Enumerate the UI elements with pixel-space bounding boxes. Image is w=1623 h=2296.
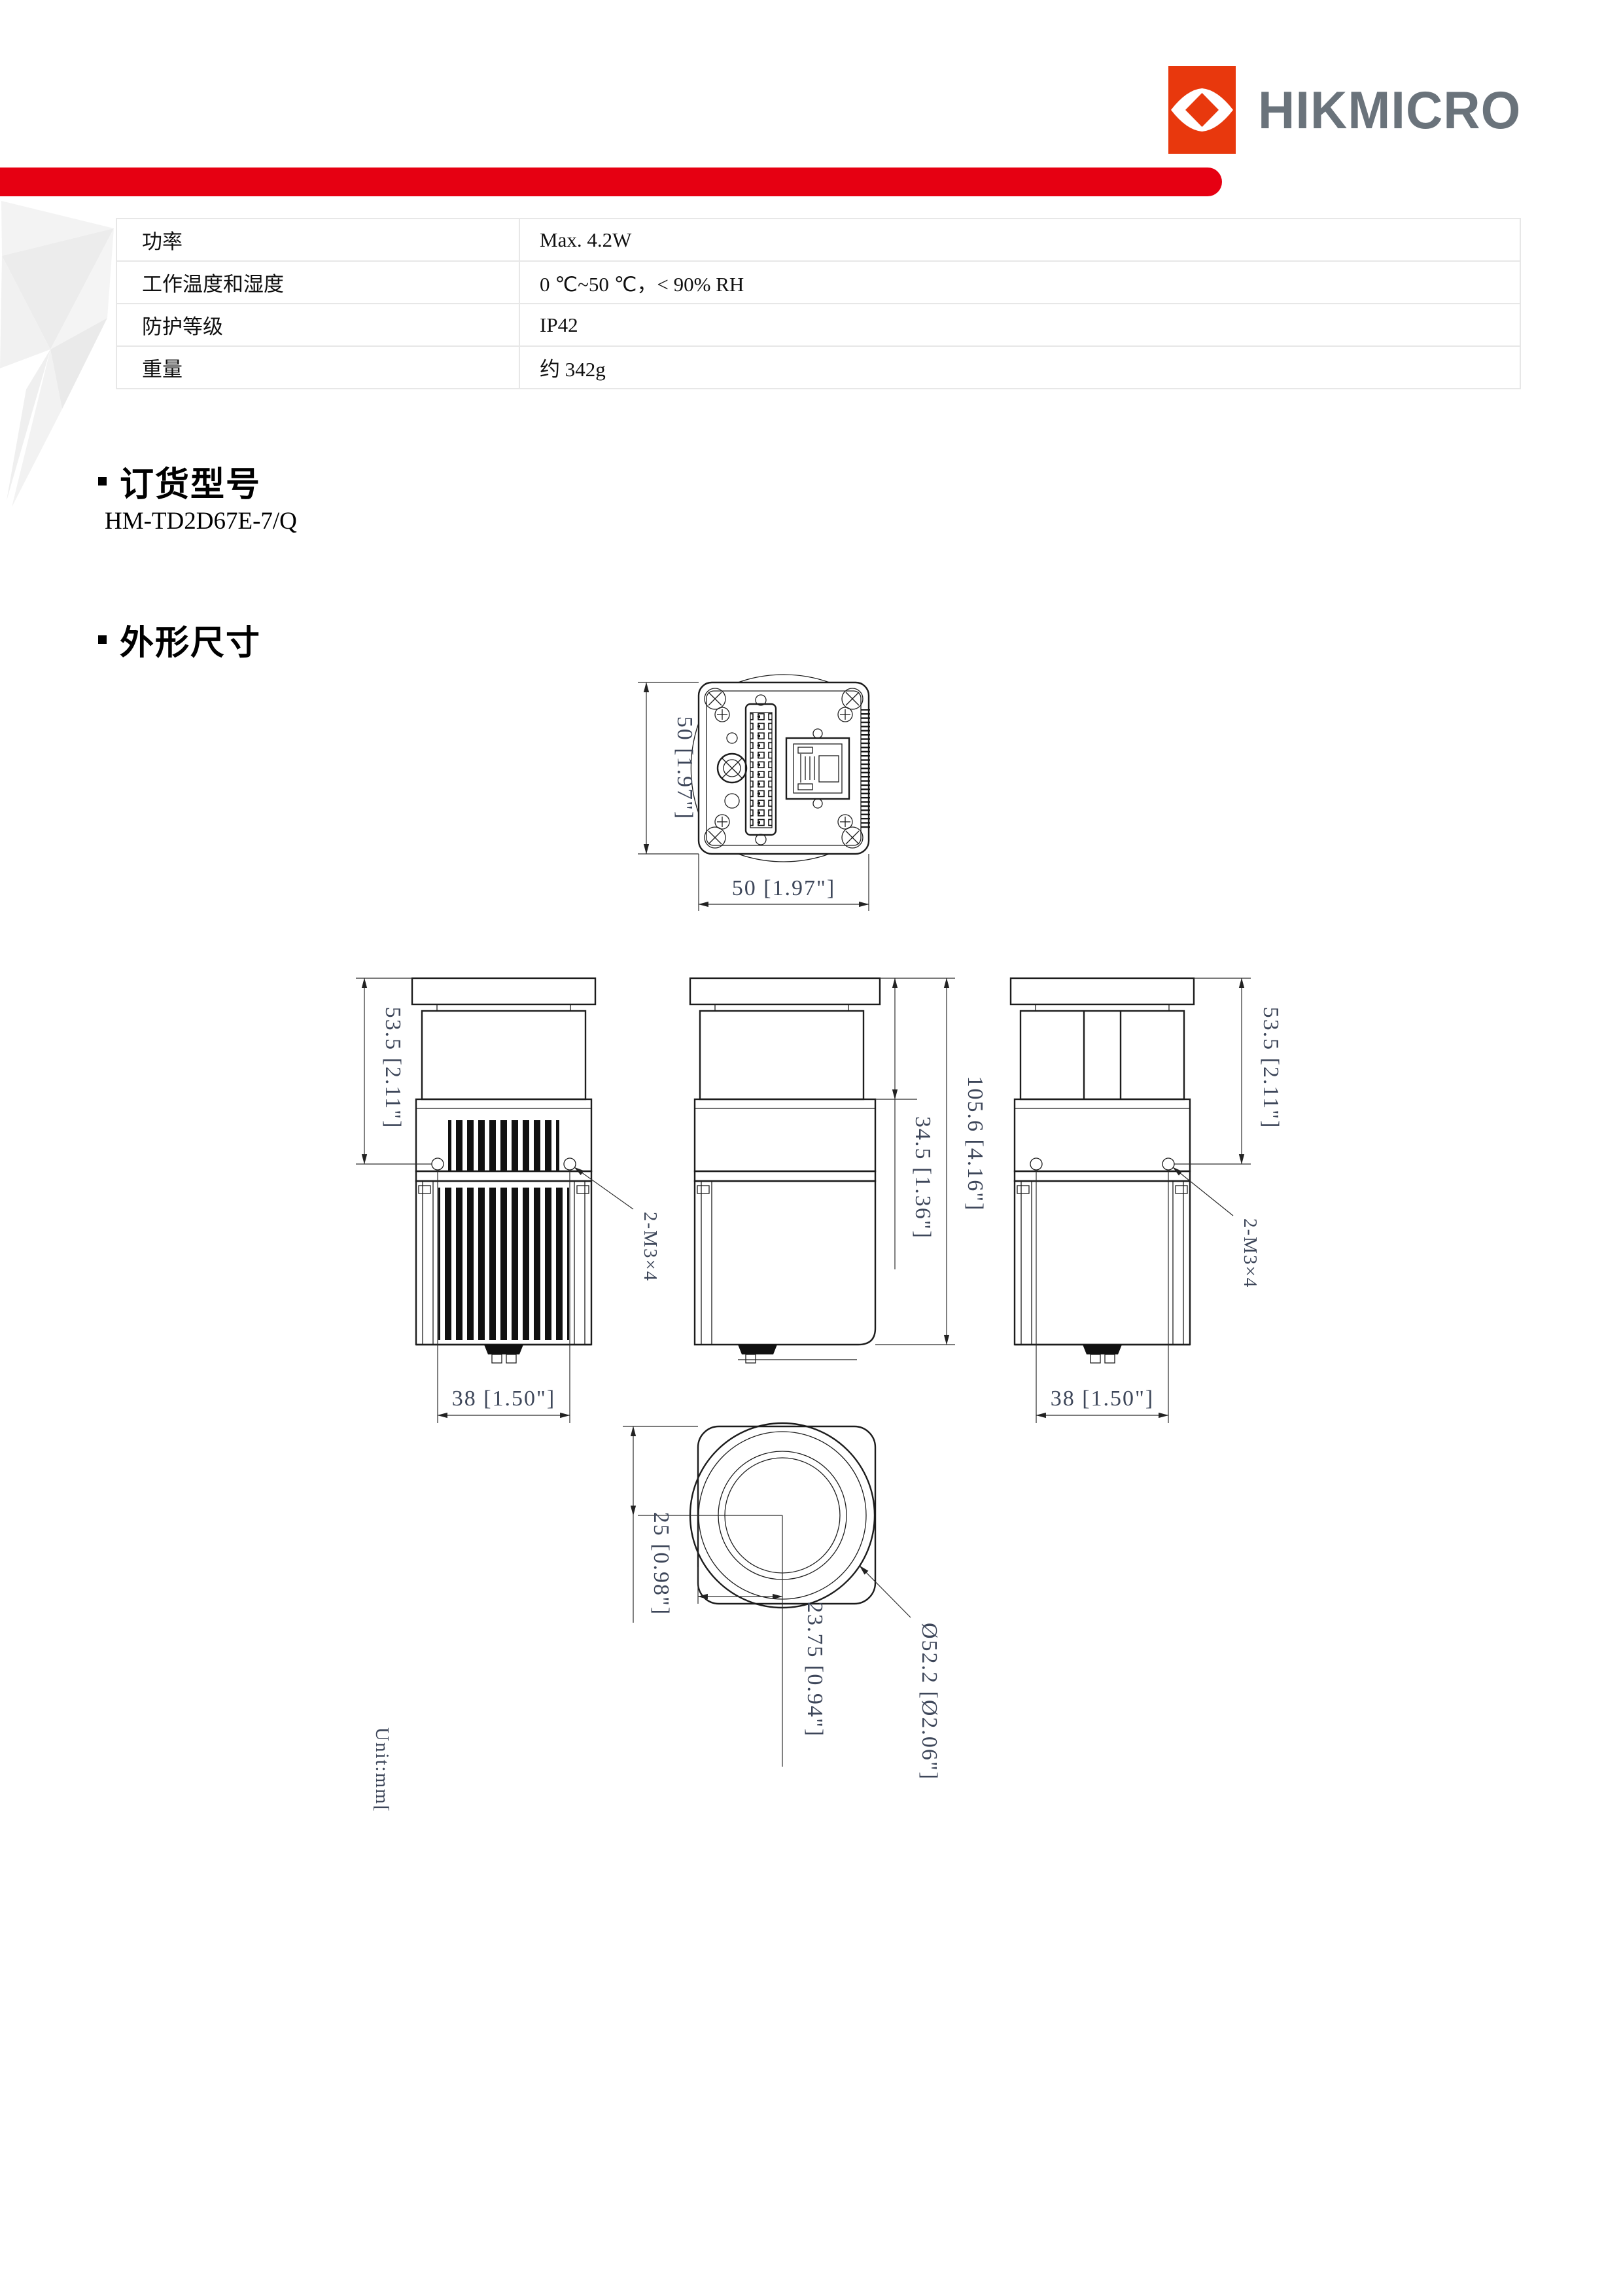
front-lens-view-drawing: 25 [0.98"] 23.75 [0.94"] Ø52.2 [Ø2.06"] — [623, 1423, 941, 1780]
dimension-label-front-section: 34.5 [1.36"] — [911, 1116, 935, 1239]
left-height-dimension: 53.5 [2.11"] — [356, 978, 432, 1164]
dimension-label-center-h: 23.75 [0.94"] — [803, 1602, 827, 1737]
spec-value: Max. 4.2W — [519, 219, 1520, 261]
spec-label: 功率 — [116, 219, 519, 261]
panel-screw-icon — [715, 707, 852, 829]
screw-callout-left: 2-M3×4 — [574, 1167, 661, 1282]
dimension-label-total-length: 105.6 [4.16"] — [963, 1076, 987, 1211]
lens-center-vertical-dimension: 25 [0.98"] — [623, 1426, 698, 1623]
terminal-block — [746, 695, 776, 845]
hikmicro-logo: HIKMICRO — [1168, 64, 1535, 156]
unit-note: Unit:mm[ — [372, 1727, 393, 1812]
dimension-label-lens-diameter: Ø52.2 [Ø2.06"] — [917, 1623, 941, 1780]
bullet-icon — [98, 635, 107, 644]
dimension-label-side-height: 53.5 [2.11"] — [1259, 1007, 1283, 1129]
bullet-icon — [98, 477, 107, 486]
front-section-dimension: 34.5 [1.36"] — [875, 978, 955, 1269]
rj45-port — [786, 729, 849, 808]
knurl-strip — [861, 709, 870, 828]
rear-width-dimension: 50 [1.97"] — [699, 854, 869, 911]
model-number: HM-TD2D67E-7/Q — [105, 507, 297, 535]
rear-view-drawing: 50 [1.97"] 50 [1.97"] — [638, 675, 870, 911]
dimension-label-side-height: 53.5 [2.11"] — [381, 1007, 405, 1129]
lens-diameter-callout: Ø52.2 [Ø2.06"] — [860, 1566, 941, 1780]
dimension-label-center-v: 25 [0.98"] — [649, 1512, 673, 1616]
dimension-label-rear-height: 50 [1.97"] — [672, 716, 697, 821]
hikmicro-logo-mark-icon — [1168, 66, 1236, 154]
logo-wordmark: HIKMICRO — [1258, 64, 1521, 155]
spec-label: 防护等级 — [116, 304, 519, 346]
spec-label: 重量 — [116, 346, 519, 389]
middle-profile-view-drawing: 34.5 [1.36"] 105.6 [4.16"] — [690, 978, 987, 1363]
dimension-drawings: 50 [1.97"] 50 [1.97"] — [0, 654, 1623, 1930]
spec-value: 0 ℃~50 ℃，< 90% RH — [519, 261, 1520, 304]
spec-value: IP42 — [519, 304, 1520, 346]
right-side-view-drawing: 53.5 [2.11"] 2-M3×4 38 [1.50"] — [1011, 978, 1283, 1423]
center-screw-icon — [718, 733, 746, 808]
corner-screw-icon — [705, 688, 863, 848]
rear-height-dimension: 50 [1.97"] — [638, 682, 699, 854]
table-row: 防护等级 IP42 — [116, 304, 1520, 346]
table-row: 功率 Max. 4.2W — [116, 219, 1520, 261]
spec-label: 工作温度和湿度 — [116, 261, 519, 304]
table-row: 重量 约 342g — [116, 346, 1520, 389]
table-row: 工作温度和湿度 0 ℃~50 ℃，< 90% RH — [116, 261, 1520, 304]
dimension-label-screw: 2-M3×4 — [1240, 1218, 1261, 1288]
spec-value: 约 342g — [519, 346, 1520, 389]
dimension-label-screw: 2-M3×4 — [640, 1212, 661, 1282]
left-side-view-drawing: 53.5 [2.11"] 2-M3×4 38 [1.50"] — [356, 978, 661, 1423]
section-heading-ordering: 订货型号 — [98, 457, 261, 506]
right-base-dimension: 38 [1.50"] — [1036, 1170, 1168, 1423]
dimension-label-base-width: 38 [1.50"] — [452, 1386, 556, 1411]
red-banner — [0, 168, 1222, 196]
spec-table: 功率 Max. 4.2W 工作温度和湿度 0 ℃~50 ℃，< 90% RH 防… — [116, 218, 1521, 389]
dimension-label-base-width: 38 [1.50"] — [1051, 1386, 1155, 1411]
lens-center-horizontal-dimension: 23.75 [0.94"] — [698, 1567, 827, 1737]
dimension-label-rear-width: 50 [1.97"] — [732, 876, 836, 900]
section-title: 订货型号 — [120, 457, 261, 506]
